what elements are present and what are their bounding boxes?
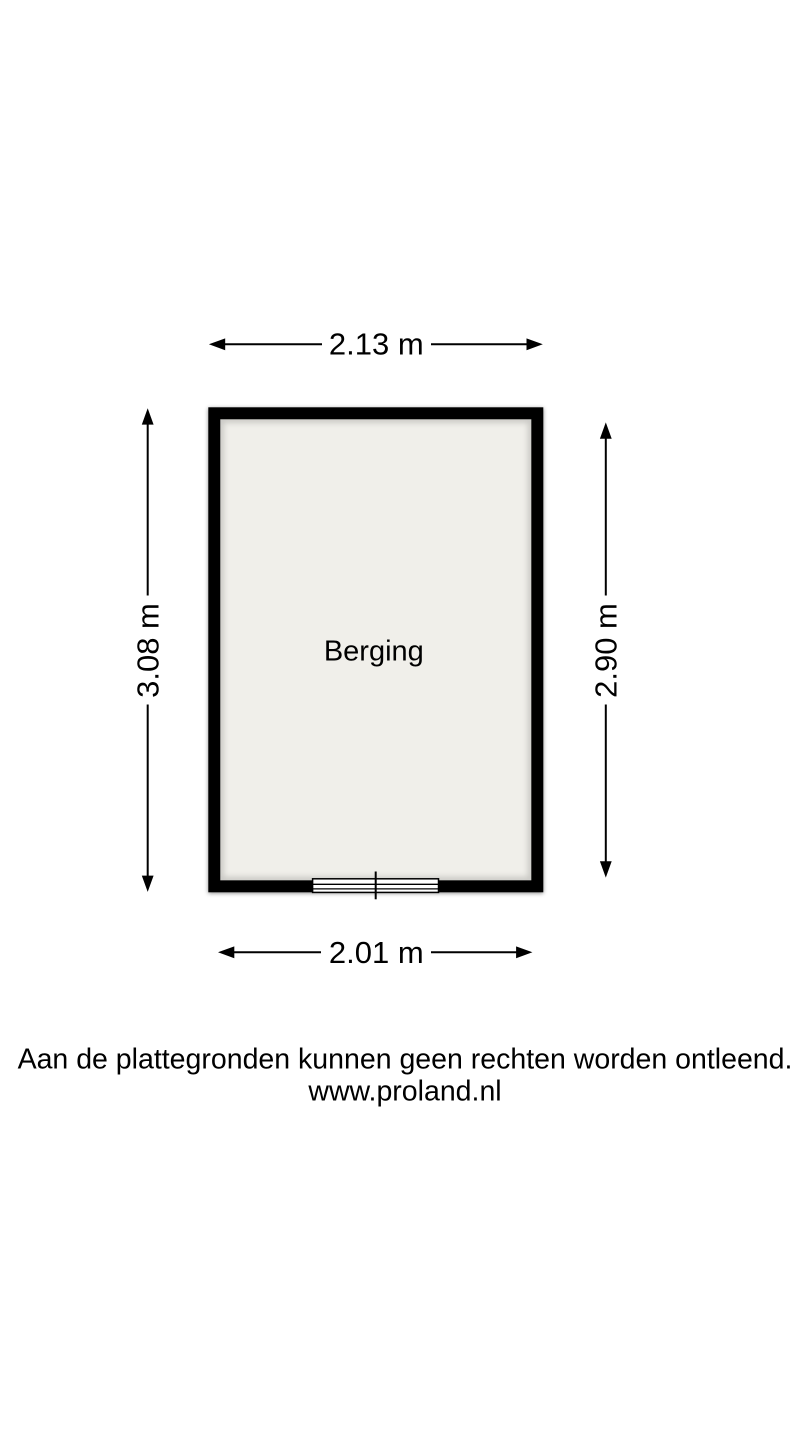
svg-text:2.01 m: 2.01 m	[329, 935, 424, 970]
svg-text:Berging: Berging	[324, 635, 424, 667]
svg-text:2.13 m: 2.13 m	[329, 327, 424, 362]
svg-text:2.90 m: 2.90 m	[588, 603, 623, 698]
svg-text:www.proland.nl: www.proland.nl	[307, 1075, 501, 1107]
svg-text:Aan de plattegronden kunnen ge: Aan de plattegronden kunnen geen rechten…	[18, 1044, 793, 1076]
svg-text:3.08 m: 3.08 m	[130, 603, 165, 698]
